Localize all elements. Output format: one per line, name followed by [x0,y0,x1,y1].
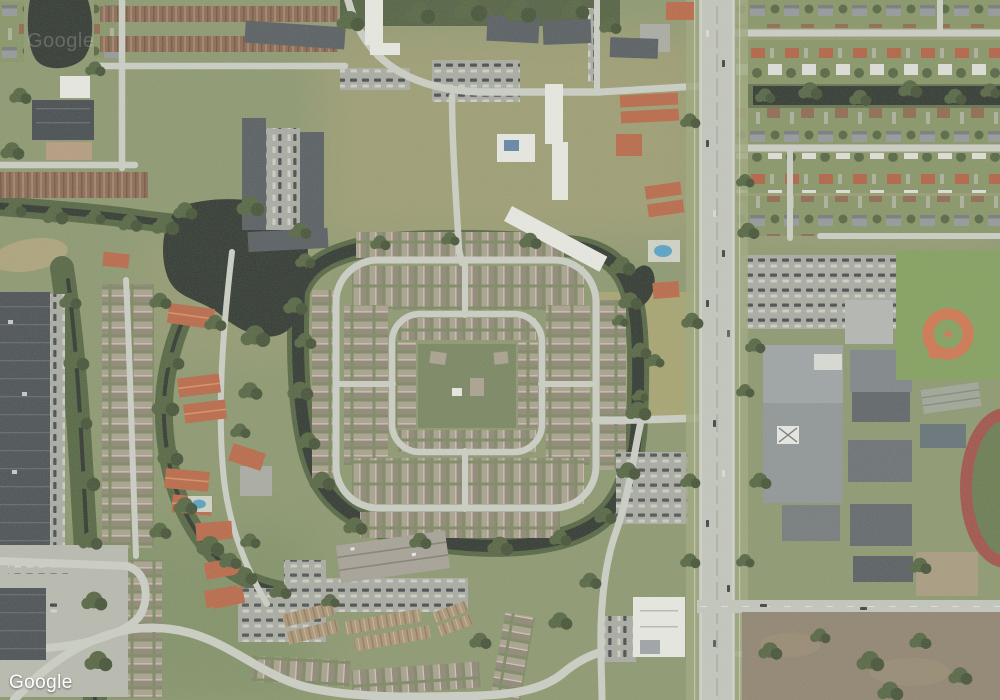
satellite-canvas [0,0,1000,700]
map-viewport[interactable]: Google Google [0,0,1000,700]
google-watermark: Google [9,673,73,692]
image-grain [0,0,1000,700]
google-watermark-faint: Google [27,31,95,51]
